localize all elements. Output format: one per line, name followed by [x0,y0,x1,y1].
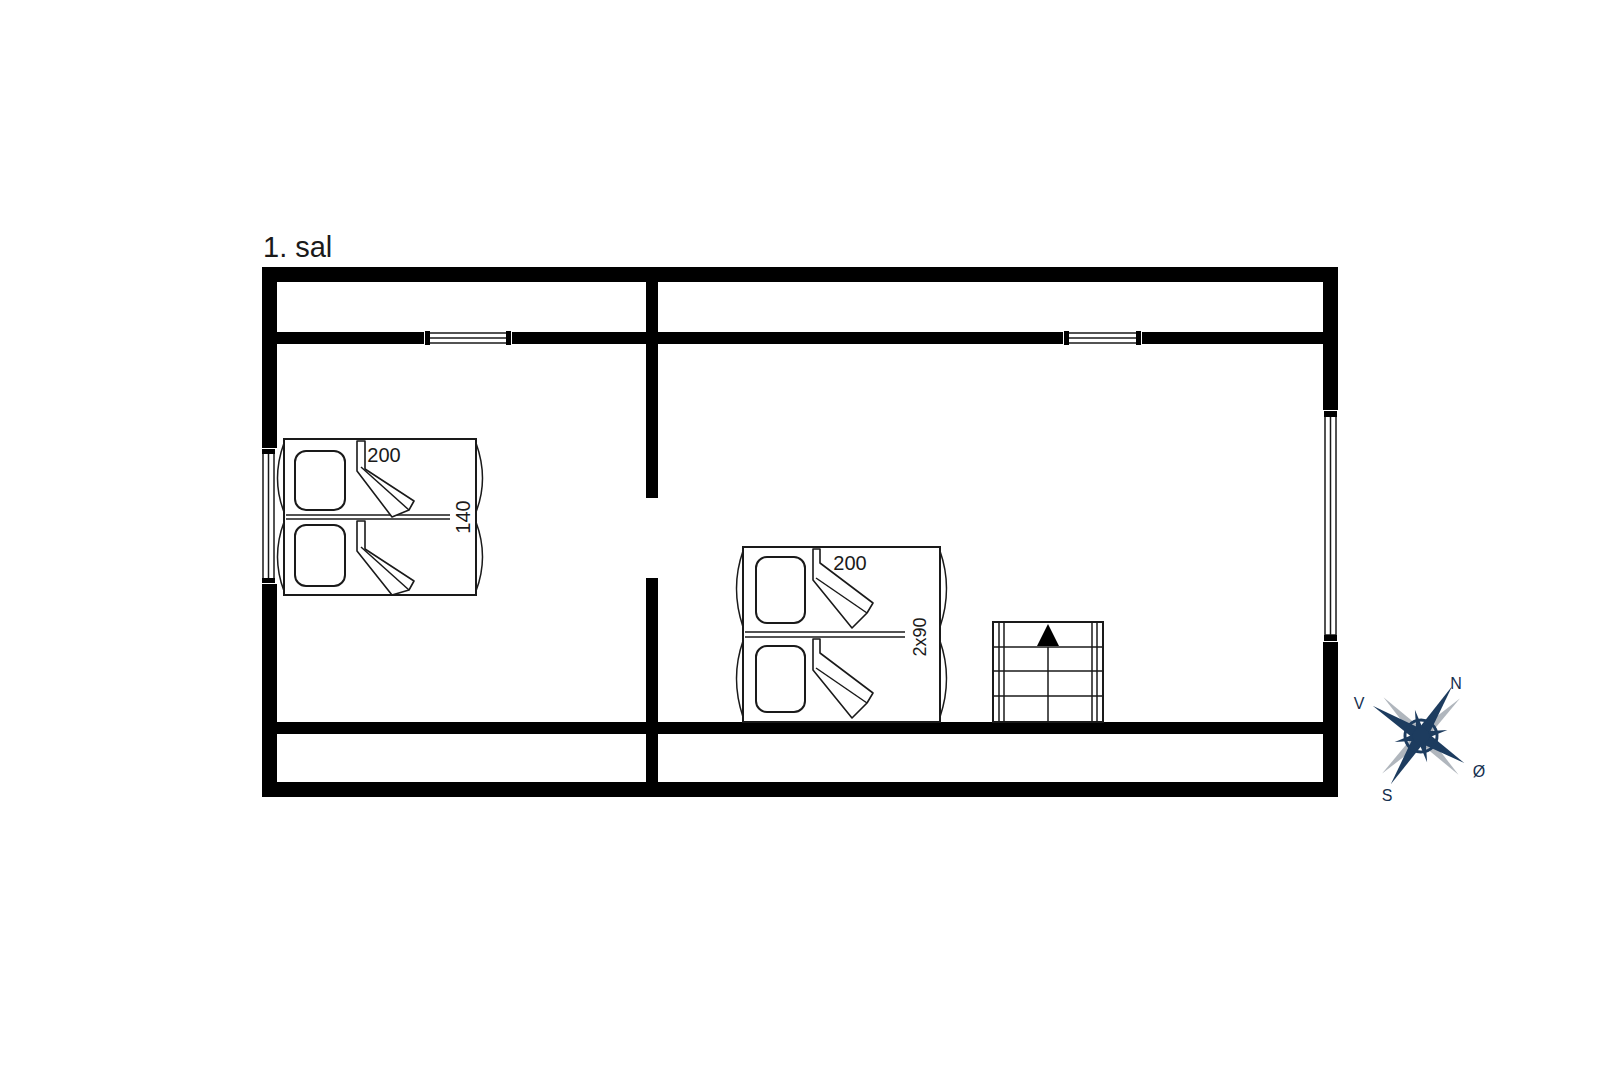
window-left-wall [260,448,278,584]
compass-rose-icon: N V S Ø [1342,656,1497,813]
window-top-right [1063,330,1142,346]
pillow [295,525,345,586]
pillow [295,451,345,510]
window-top-left [424,330,512,346]
floorplan-svg: 1. sal [0,0,1600,1066]
outer-wall-bottom [262,782,1338,797]
divider-wall-lower [646,578,658,782]
floorplan-canvas: 1. sal [0,0,1600,1066]
bed-twin: 200 2x90 [737,547,947,722]
window-right-wall [1321,410,1340,642]
divider-wall-upper [646,282,658,498]
compass-east-label: Ø [1473,763,1485,780]
interior-wall-bottom [277,722,1323,734]
pillow [756,557,805,623]
compass-north-label: N [1450,675,1462,692]
compass-south-label: S [1382,787,1393,804]
floor-title: 1. sal [263,231,332,263]
bed-length-label: 200 [367,444,400,466]
bed-length-label: 200 [833,552,866,574]
bed-width-label: 2x90 [910,617,930,656]
bed-double: 200 140 [278,439,483,595]
outer-wall-top [262,267,1338,282]
staircase [993,622,1103,722]
compass-west-label: V [1354,695,1365,712]
pillow [756,646,805,712]
bed-width-label: 140 [452,500,474,533]
